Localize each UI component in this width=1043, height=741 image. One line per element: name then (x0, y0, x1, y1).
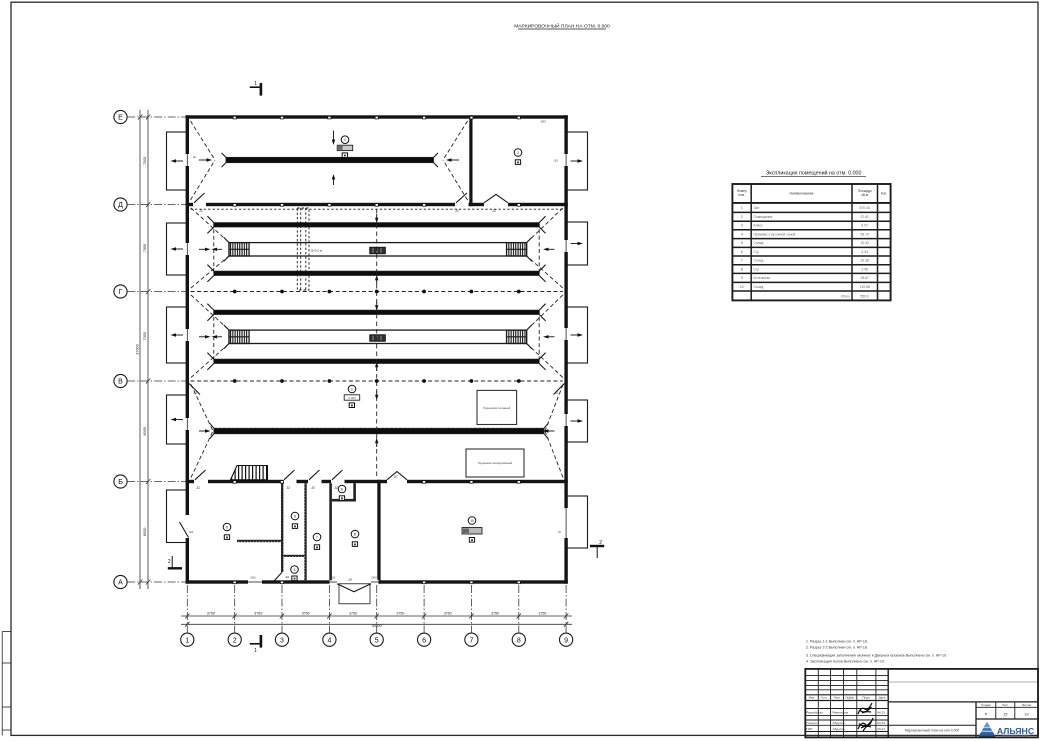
svg-text:2. Разрез 2-2 Выполнен см. л.: 2. Разрез 2-2 Выполнен см. л. АР-18. (806, 646, 868, 650)
svg-text:3750: 3750 (207, 611, 215, 615)
svg-text:570.44: 570.44 (860, 206, 870, 210)
svg-text:Стадия: Стадия (981, 703, 991, 707)
svg-text:2: 2 (168, 559, 171, 565)
svg-text:5: 5 (294, 515, 296, 519)
svg-text:8: 8 (354, 533, 356, 537)
svg-text:6: 6 (422, 637, 426, 644)
svg-text:9: 9 (741, 276, 743, 280)
svg-text:пом.: пом. (739, 193, 746, 197)
svg-text:В1: В1 (555, 159, 559, 163)
svg-text:3750: 3750 (444, 611, 452, 615)
svg-text:3750: 3750 (254, 611, 262, 615)
svg-text:1: 1 (254, 648, 257, 654)
svg-text:9: 9 (226, 526, 228, 530)
svg-text:19: 19 (1024, 711, 1029, 716)
svg-text:3: 3 (741, 224, 743, 228)
svg-text:10.34: 10.34 (860, 241, 869, 245)
svg-text:Наименование: Наименование (789, 192, 813, 196)
svg-text:6: 6 (341, 488, 343, 492)
svg-text:8: 8 (741, 267, 743, 271)
svg-text:0.000: 0.000 (348, 396, 356, 400)
svg-text:Лист: Лист (834, 696, 841, 700)
svg-text:Д2: Д2 (335, 486, 339, 490)
svg-text:1. Разрез 1-1 Выполнен см. л.: 1. Разрез 1-1 Выполнен см. л. АР-18. (806, 640, 868, 644)
svg-text:Помещение: Помещение (754, 215, 773, 219)
svg-text:Маркировочный план на отм 0.00: Маркировочный план на отм 0.000 (905, 729, 960, 733)
svg-text:7000: 7000 (143, 332, 147, 340)
svg-text:Склад: Склад (754, 241, 764, 245)
svg-text:Д3: Д3 (312, 486, 316, 490)
svg-text:2: 2 (233, 637, 237, 644)
svg-text:Д1: Д1 (194, 391, 198, 395)
svg-text:2.96: 2.96 (861, 267, 868, 271)
svg-text:Д2: Д2 (197, 486, 201, 490)
svg-text:28.67: 28.67 (860, 276, 869, 280)
svg-text:Склад: Склад (754, 285, 764, 289)
svg-text:Лист: Лист (1002, 703, 1009, 707)
svg-text:58.79: 58.79 (860, 232, 869, 236)
svg-text:10: 10 (470, 519, 474, 523)
svg-text:37000: 37000 (135, 344, 139, 355)
svg-text:04.21: 04.21 (877, 721, 885, 725)
svg-text:1: 1 (185, 637, 189, 644)
svg-text:Кол.: Кол. (881, 192, 887, 196)
svg-text:Подъемник 1-этажный: Подъемник 1-этажный (483, 406, 510, 410)
svg-text:Г: Г (119, 289, 123, 296)
svg-text:Кол.: Кол. (821, 696, 827, 700)
svg-text:6.07: 6.07 (861, 224, 868, 228)
svg-text:10: 10 (740, 285, 744, 289)
svg-text:Приемка с кухонной зоной: Приемка с кухонной зоной (754, 232, 796, 236)
svg-text:3750: 3750 (349, 611, 357, 615)
svg-text:4: 4 (327, 637, 331, 644)
svg-text:СТРОИТЕЛЬНАЯ КОМПАНИЯ: СТРОИТЕЛЬНАЯ КОМПАНИЯ (1001, 734, 1030, 737)
svg-text:37.61: 37.61 (860, 215, 869, 219)
svg-text:16.38: 16.38 (860, 259, 869, 263)
svg-text:Д2: Д2 (456, 209, 460, 213)
svg-text:Класс: Класс (754, 224, 764, 228)
svg-text:559.9: 559.9 (860, 295, 869, 299)
svg-text:5: 5 (741, 241, 743, 245)
svg-text:15: 15 (1003, 711, 1008, 716)
svg-text:Д4: Д4 (349, 578, 353, 582)
svg-text:Ш: Ш (193, 155, 196, 159)
svg-text:АЛЬЯНС: АЛЬЯНС (997, 726, 1035, 736)
svg-text:2: 2 (741, 215, 743, 219)
svg-text:1: 1 (254, 81, 257, 87)
svg-text:Абдулов: Абдулов (833, 721, 846, 725)
svg-text:ОК1: ОК1 (251, 576, 257, 580)
svg-text:Котельная: Котельная (754, 276, 771, 280)
svg-text:Н.контр.: Н.контр. (806, 721, 818, 725)
svg-text:С/у: С/у (754, 267, 759, 271)
svg-text:ОК2: ОК2 (330, 576, 336, 580)
svg-text:9: 9 (564, 637, 568, 644)
svg-text:Р: Р (985, 711, 988, 716)
svg-text:2.44: 2.44 (861, 250, 868, 254)
svg-text:Экспликация помещений на отм.: Экспликация помещений на отм. 0.000 (766, 170, 862, 177)
svg-text:4: 4 (741, 232, 743, 236)
svg-text:ОК3: ОК3 (541, 120, 547, 124)
svg-text:№Док.: №Док. (846, 696, 855, 700)
svg-text:Д3: Д3 (287, 486, 291, 490)
svg-text:3: 3 (280, 637, 284, 644)
svg-text:2: 2 (599, 540, 602, 546)
svg-text:2: 2 (517, 151, 519, 155)
svg-text:В: В (118, 379, 123, 386)
svg-text:Д3: Д3 (394, 475, 398, 479)
svg-text:04.21: 04.21 (877, 710, 885, 714)
svg-text:Подп.: Подп. (862, 696, 870, 700)
svg-text:3750: 3750 (491, 611, 499, 615)
svg-text:Д4: Д4 (286, 575, 290, 579)
svg-text:Д1: Д1 (555, 391, 559, 395)
svg-text:119.88: 119.88 (860, 285, 870, 289)
svg-text:А: А (118, 580, 123, 587)
svg-text:Е: Е (118, 115, 123, 122)
svg-text:Б: Б (118, 479, 123, 486)
svg-text:3. Спецификация заполнения око: 3. Спецификация заполнения оконных и Две… (806, 654, 947, 658)
svg-text:Итого: Итого (841, 295, 850, 299)
svg-text:3: 3 (294, 568, 296, 572)
svg-text:1: 1 (741, 206, 743, 210)
svg-text:8: 8 (517, 637, 521, 644)
svg-text:ГИП: ГИП (806, 727, 812, 731)
svg-text:7: 7 (316, 536, 318, 540)
svg-text:04.21: 04.21 (877, 727, 885, 731)
svg-text:ОК2: ОК2 (372, 576, 378, 580)
svg-text:Подъемник платформенный: Подъемник платформенный (478, 461, 513, 465)
svg-text:3750: 3750 (302, 611, 310, 615)
svg-text:3750: 3750 (396, 611, 404, 615)
svg-text:30000: 30000 (372, 624, 382, 628)
svg-text:Ш1: Ш1 (190, 530, 194, 534)
svg-text:Дата: Дата (879, 696, 886, 700)
svg-text:Листов: Листов (1022, 703, 1032, 707)
svg-text:4. Экспликация полов Выполнено: 4. Экспликация полов Выполнено см. л. АР… (806, 660, 885, 664)
svg-text:Д3: Д3 (493, 209, 497, 213)
svg-text:8000: 8000 (143, 528, 147, 536)
svg-text:7: 7 (741, 259, 743, 263)
svg-text:7000: 7000 (143, 244, 147, 252)
svg-text:Ременсков: Ременсков (833, 710, 849, 714)
svg-text:Разработал: Разработал (806, 710, 823, 714)
svg-text:Зал: Зал (754, 206, 760, 210)
svg-text:Д: Д (118, 202, 123, 209)
svg-text:7: 7 (469, 637, 473, 644)
svg-text:8000: 8000 (143, 427, 147, 435)
svg-text:3750: 3750 (538, 611, 546, 615)
svg-text:1: 1 (344, 138, 346, 142)
svg-text:С/у: С/у (754, 250, 759, 254)
svg-text:1: 1 (351, 388, 353, 392)
svg-text:Д2: Д2 (200, 209, 204, 213)
svg-text:5: 5 (375, 637, 379, 644)
svg-text:Q=3,2 м: Q=3,2 м (311, 249, 322, 253)
svg-text:кВ.м: кВ.м (861, 193, 868, 197)
svg-text:6: 6 (741, 250, 743, 254)
svg-text:7000: 7000 (143, 157, 147, 165)
svg-text:Абдулов: Абдулов (833, 727, 846, 731)
svg-text:Изм.: Изм. (809, 696, 816, 700)
svg-text:Склад: Склад (754, 259, 764, 263)
